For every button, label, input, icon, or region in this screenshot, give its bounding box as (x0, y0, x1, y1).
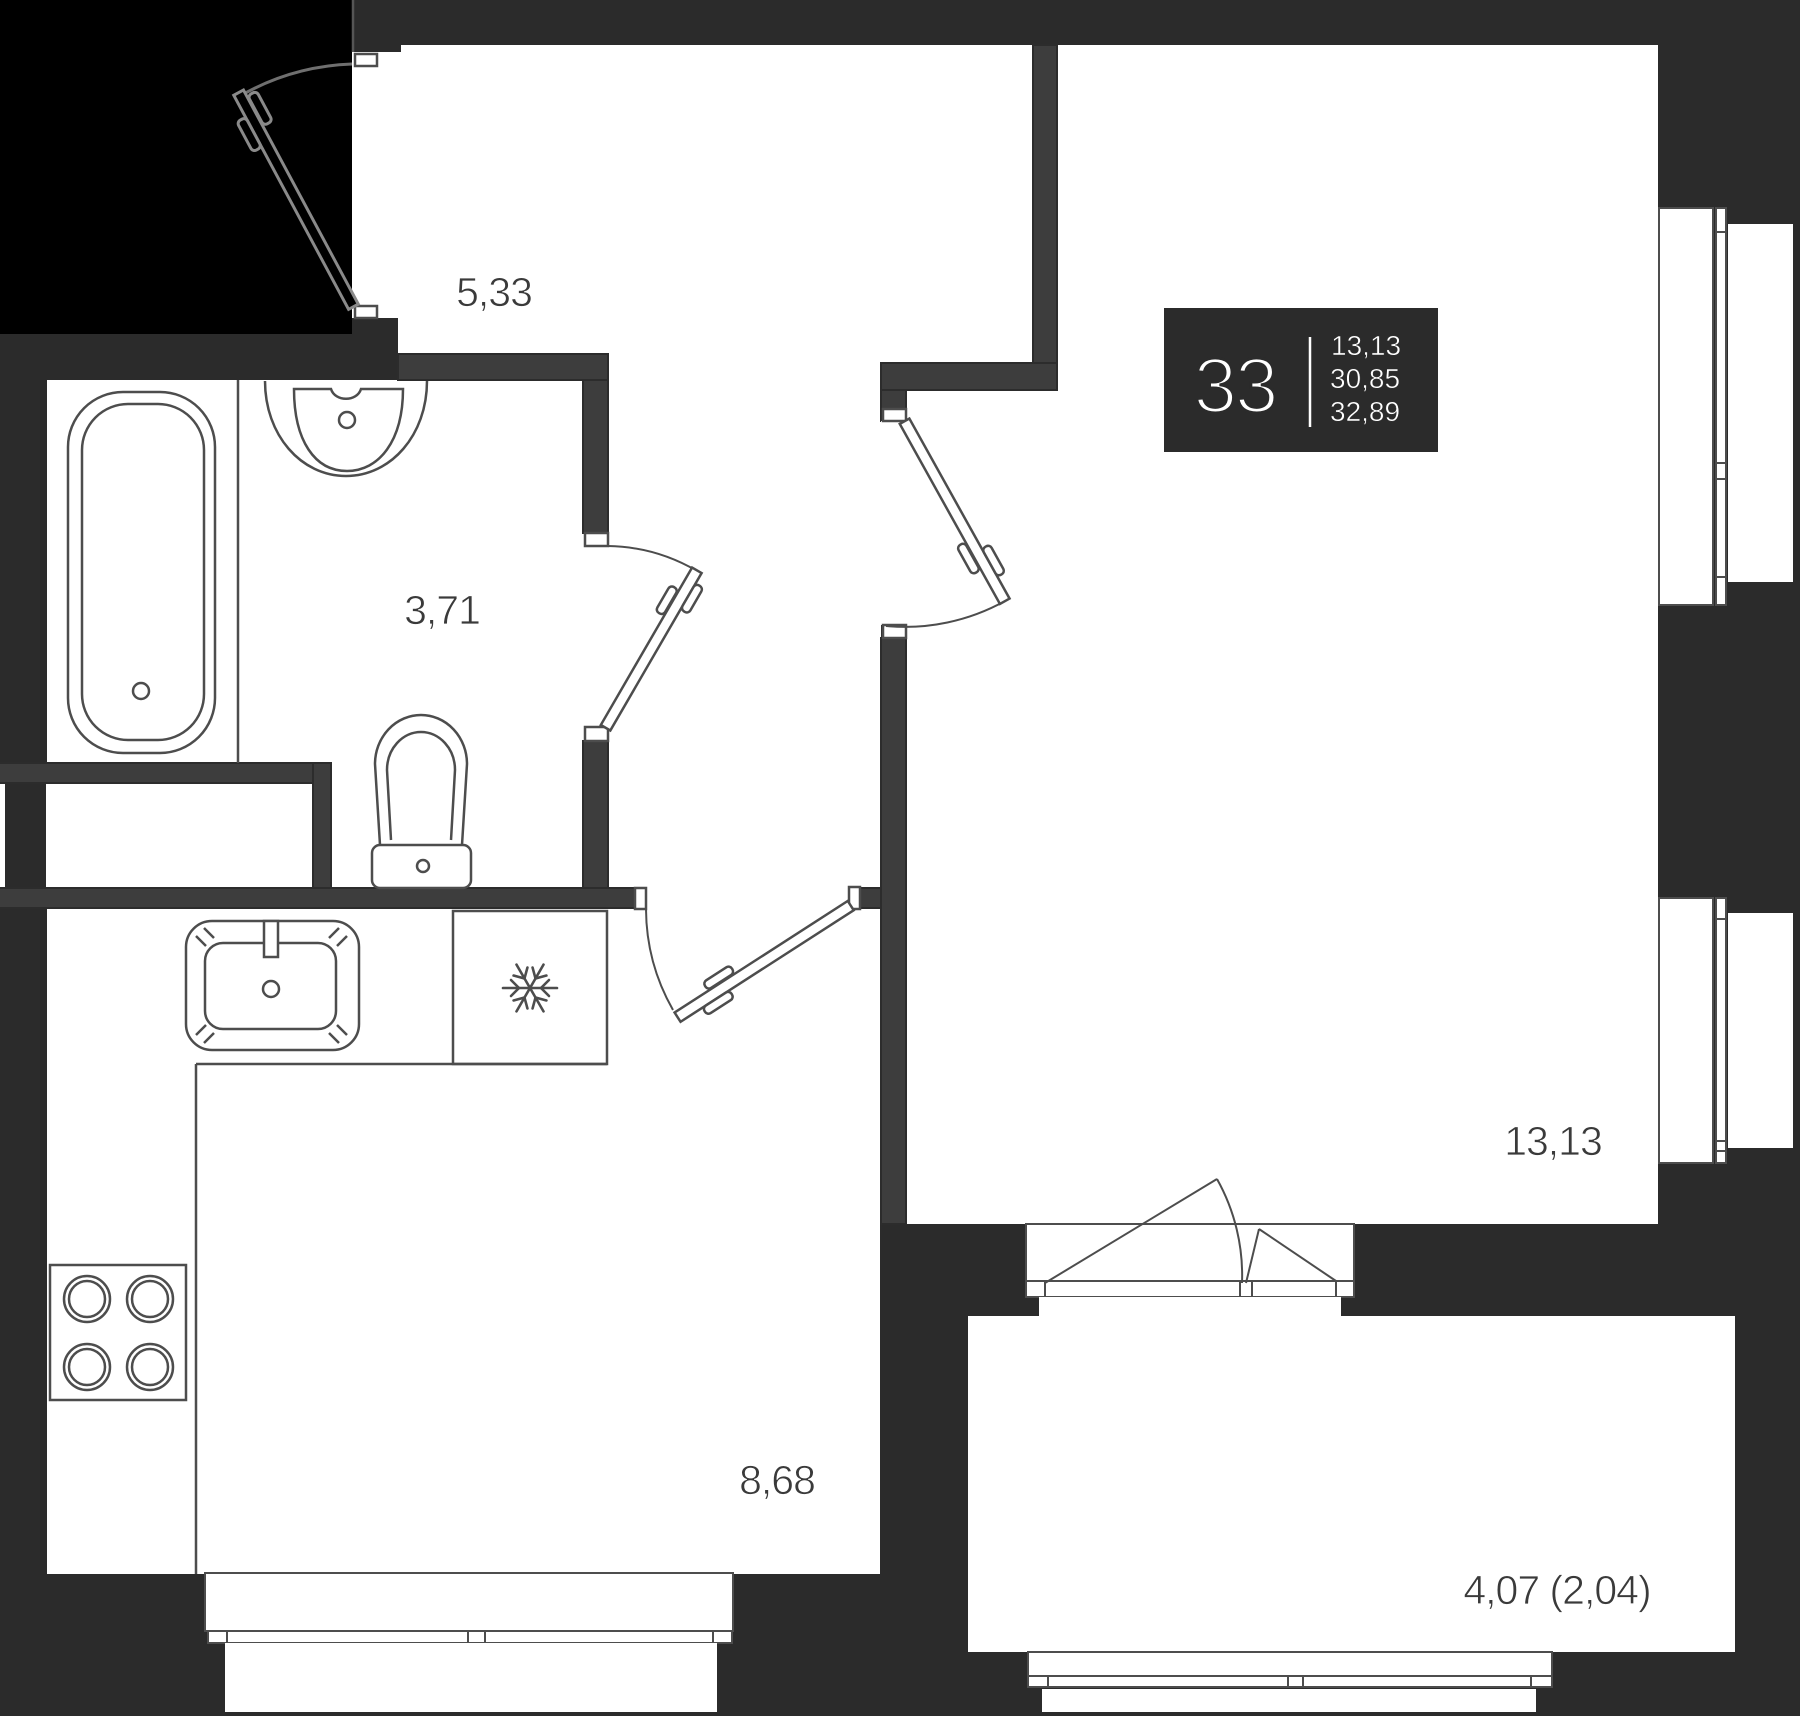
svg-text:30,85: 30,85 (1330, 363, 1400, 394)
svg-text:32,89: 32,89 (1330, 396, 1400, 427)
svg-text:5,33: 5,33 (456, 269, 532, 315)
svg-text:13,13: 13,13 (1504, 1118, 1602, 1164)
svg-text:4,07 (2,04): 4,07 (2,04) (1463, 1567, 1650, 1613)
svg-text:13,13: 13,13 (1331, 330, 1401, 361)
svg-text:33: 33 (1194, 341, 1277, 429)
svg-text:3,71: 3,71 (404, 587, 480, 633)
svg-text:8,68: 8,68 (739, 1457, 815, 1503)
